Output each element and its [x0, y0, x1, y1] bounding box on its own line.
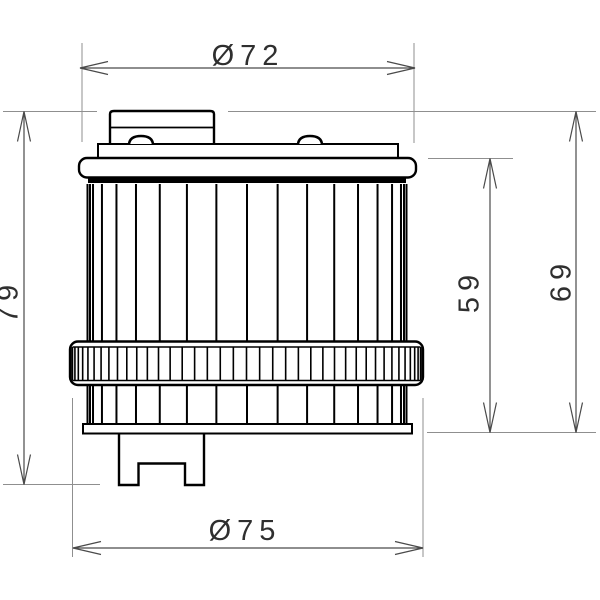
- dimension-label-overall-height: 79: [0, 279, 24, 323]
- top-plate: [98, 144, 398, 158]
- filter-pleats-upper: [88, 184, 407, 342]
- dimension-label-bottom-diameter: Ø75: [209, 517, 282, 546]
- dimension-label-body-height: 69: [548, 258, 577, 302]
- cap-seam: [88, 178, 406, 184]
- knurled-nut-band: [70, 342, 423, 386]
- base-plate: [83, 424, 412, 434]
- oil-filter-side-view: [0, 0, 600, 600]
- dimension-label-element-height: 59: [456, 269, 485, 313]
- extension-lines: [3, 43, 596, 557]
- technical-drawing-canvas: Ø72 Ø75 79 59 69: [0, 0, 600, 600]
- bottom-bracket: [119, 434, 204, 486]
- dimension-label-top-diameter: Ø72: [212, 42, 285, 71]
- filter-pleats-lower: [88, 386, 407, 424]
- top-mounting-tab: [110, 111, 214, 147]
- cap-ring: [79, 158, 416, 178]
